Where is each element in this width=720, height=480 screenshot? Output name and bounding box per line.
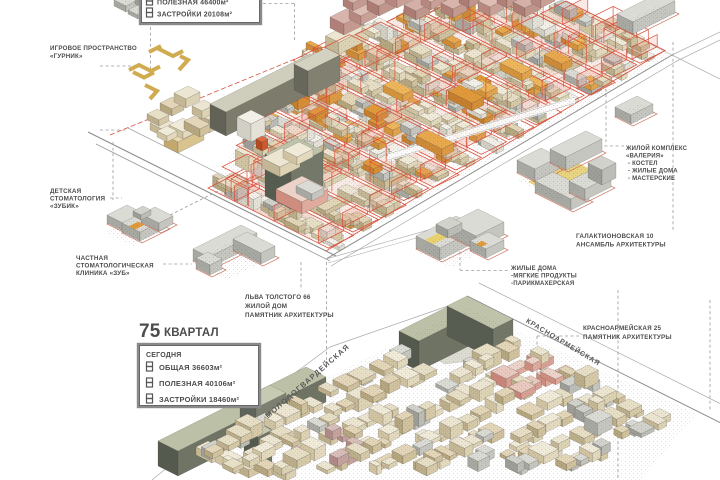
svg-text:ЗАСТРОЙКИ 20108м²: ЗАСТРОЙКИ 20108м² xyxy=(157,10,233,19)
svg-text:-МЯГКИЕ ПРОДУКТЫ: -МЯГКИЕ ПРОДУКТЫ xyxy=(511,274,577,280)
svg-text:ИГРОВОЕ ПРОСТРАНСТВО: ИГРОВОЕ ПРОСТРАНСТВО xyxy=(50,45,137,52)
svg-text:АНСАМБЛЬ АРХИТЕКТУРЫ: АНСАМБЛЬ АРХИТЕКТУРЫ xyxy=(576,242,666,249)
svg-text:СТОМАТОЛОГИЯ: СТОМАТОЛОГИЯ xyxy=(50,196,105,203)
svg-text:ЖИЛЫЕ ДОМА: ЖИЛЫЕ ДОМА xyxy=(510,266,557,272)
svg-text:КВАРТАЛ: КВАРТАЛ xyxy=(164,327,219,339)
svg-text:«ВАЛЕРИЯ»: «ВАЛЕРИЯ» xyxy=(626,154,664,160)
svg-text:ЛЬВА ТОЛСТОГО 66: ЛЬВА ТОЛСТОГО 66 xyxy=(245,294,311,301)
svg-text:ЗАСТРОЙКИ 18460м²: ЗАСТРОЙКИ 18460м² xyxy=(159,395,240,404)
svg-text:- ЖИЛЫЕ ДОМА: - ЖИЛЫЕ ДОМА xyxy=(628,169,678,175)
svg-text:- МАСТЕРСКИЕ: - МАСТЕРСКИЕ xyxy=(628,176,675,182)
svg-text:- КОСТЕЛ: - КОСТЕЛ xyxy=(628,161,658,167)
svg-text:ПОЛЕЗНАЯ 46400м²: ПОЛЕЗНАЯ 46400м² xyxy=(157,0,229,7)
svg-text:СТОМАТОЛОГИЧЕСКАЯ: СТОМАТОЛОГИЧЕСКАЯ xyxy=(76,263,154,270)
svg-text:«ГУРНИК»: «ГУРНИК» xyxy=(50,53,83,60)
svg-text:ПОЛЕЗНАЯ 40106м²: ПОЛЕЗНАЯ 40106м² xyxy=(159,379,236,388)
svg-text:ЖИЛОЙ ДОМ: ЖИЛОЙ ДОМ xyxy=(244,301,287,310)
svg-text:ГАЛАКТИОНОВСКАЯ 10: ГАЛАКТИОНОВСКАЯ 10 xyxy=(576,233,654,240)
svg-text:75: 75 xyxy=(139,321,161,342)
svg-text:ПАМЯТНИК АРХИТЕКТУРЫ: ПАМЯТНИК АРХИТЕКТУРЫ xyxy=(583,334,672,341)
svg-text:ЧАСТНАЯ: ЧАСТНАЯ xyxy=(76,255,108,262)
svg-text:ЖИЛОЙ КОМПЛЕКС: ЖИЛОЙ КОМПЛЕКС xyxy=(625,144,688,152)
svg-text:ДЕТСКАЯ: ДЕТСКАЯ xyxy=(50,188,82,195)
svg-text:СЕГОДНЯ: СЕГОДНЯ xyxy=(146,352,181,359)
svg-text:«ЗУБИК»: «ЗУБИК» xyxy=(50,203,79,210)
svg-text:ОБЩАЯ 36603м²: ОБЩАЯ 36603м² xyxy=(159,363,223,372)
svg-text:КЛИНИКА «ЗУБ»: КЛИНИКА «ЗУБ» xyxy=(76,270,130,277)
svg-text:КРАСНОАРМЕЙСКАЯ 25: КРАСНОАРМЕЙСКАЯ 25 xyxy=(583,323,661,332)
svg-text:-ПАРИКМАХЕРСКАЯ: -ПАРИКМАХЕРСКАЯ xyxy=(511,281,574,287)
svg-text:ПАМЯТНИК АРХИТЕКТУРЫ: ПАМЯТНИК АРХИТЕКТУРЫ xyxy=(245,312,334,319)
